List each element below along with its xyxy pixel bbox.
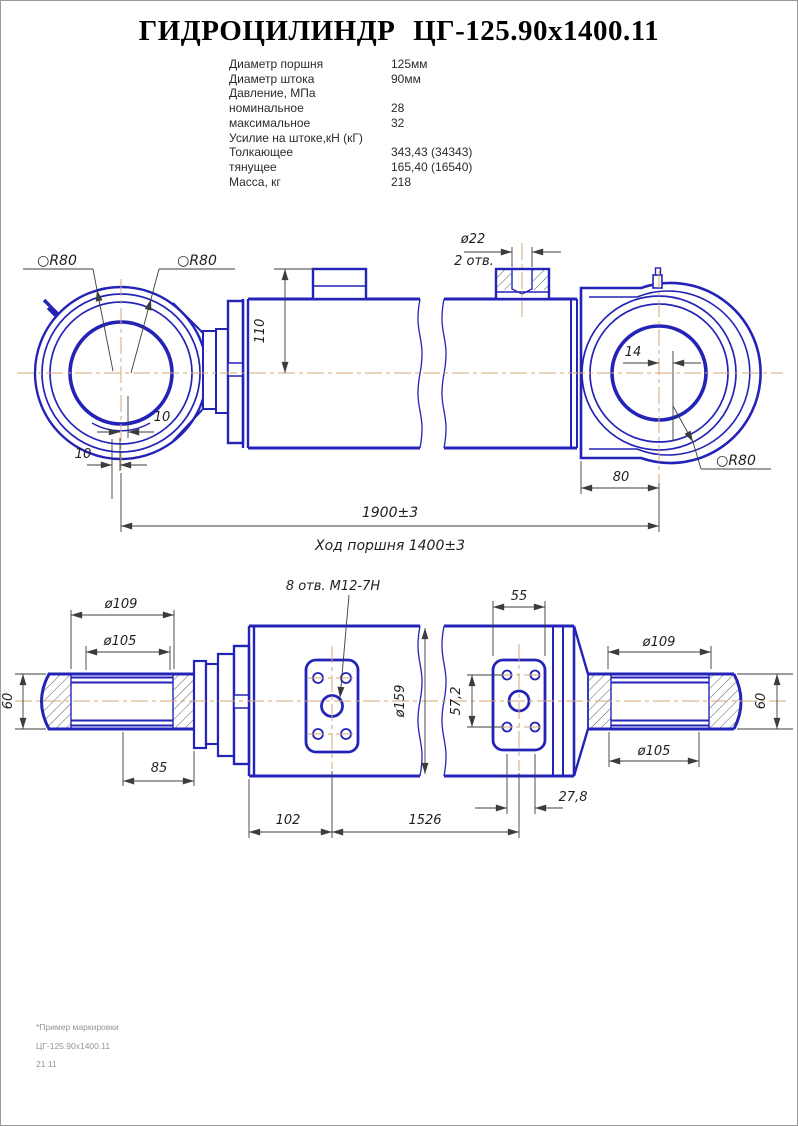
marking-footnote: *Пример маркировки ЦГ-125.90х1400.11 21 …: [36, 1018, 119, 1074]
grease-nipple-icon: [44, 300, 58, 316]
dim-rod-dia-left: 60: [1, 693, 16, 710]
drawing-sheet: ГИДРОЦИЛИНДР ЦГ-125.90х1400.11 Диаметр п…: [0, 0, 798, 1126]
grease-nipple-icon: [653, 268, 662, 288]
dim-eye-offset: 14: [625, 345, 642, 360]
footnote-line: *Пример маркировки: [36, 1018, 119, 1037]
footnote-line: ЦГ-125.90х1400.11: [36, 1037, 119, 1056]
dim-rod-dia-right: 60: [754, 693, 769, 710]
bottom-view-drawing: 60 ø109 ø105 85 8 отв. М12-7Н ø159 55 57…: [1, 579, 793, 838]
dim-thread-id-left: ø105: [103, 634, 137, 649]
dim-piston-stroke: Ход поршня 1400±3: [314, 538, 465, 554]
dim-sphere-r80-left-outer: ○R80: [37, 253, 77, 269]
dim-port2-offset: 27,8: [559, 790, 588, 805]
dim-thread-od-left: ø109: [104, 597, 138, 612]
dim-body-dia: ø159: [393, 685, 408, 719]
dim-head-to-eye: 80: [613, 470, 630, 485]
dim-offset-outer: 10: [75, 447, 92, 462]
dim-port-height: 110: [253, 319, 268, 344]
dim-hole-dia: ø22: [460, 232, 486, 247]
head-eye-right: [581, 268, 761, 463]
dim-flange-width: 55: [511, 589, 528, 604]
dim-hole-spacing: 57,2: [449, 687, 464, 716]
dim-offset-inner: 10: [154, 410, 171, 425]
top-view-drawing: ○R80 ○R80 ○R80 ø22 2 отв. 110 14 10 10 8…: [17, 232, 783, 554]
dim-hole-count: 2 отв.: [454, 254, 494, 269]
technical-drawing: ○R80 ○R80 ○R80 ø22 2 отв. 110 14 10 10 8…: [1, 1, 797, 1125]
dim-thread-od-right: ø109: [642, 635, 676, 650]
port-boss-left: [313, 269, 366, 299]
dim-thread-id-right: ø105: [637, 744, 671, 759]
cylinder-body: [248, 269, 577, 448]
dim-total-length: 1900±3: [362, 505, 418, 521]
dim-sphere-r80-right: ○R80: [716, 453, 756, 469]
label-bolt-holes: 8 отв. М12-7Н: [286, 579, 381, 594]
dim-port-distance: 1526: [408, 813, 441, 828]
footnote-line: 21 11: [36, 1055, 119, 1074]
dim-thread-length: 85: [151, 761, 168, 776]
dim-port1-offset: 102: [276, 813, 301, 828]
dim-sphere-r80-left-inner: ○R80: [177, 253, 217, 269]
